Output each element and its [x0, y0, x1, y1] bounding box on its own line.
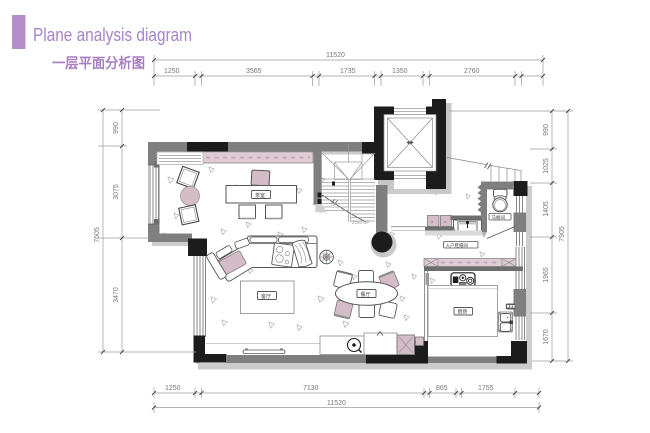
svg-text:3075: 3075 — [113, 184, 120, 200]
svg-text:1735: 1735 — [340, 68, 356, 75]
svg-text:1405: 1405 — [543, 201, 550, 217]
svg-text:1755: 1755 — [478, 385, 494, 392]
svg-text:865: 865 — [436, 385, 448, 392]
svg-text:客厅: 客厅 — [261, 293, 271, 300]
svg-text:7905: 7905 — [559, 226, 566, 242]
svg-text:1670: 1670 — [543, 329, 550, 345]
svg-text:2150 UP: 2150 UP — [352, 220, 370, 225]
svg-text:990: 990 — [113, 122, 120, 134]
svg-text:马桶间: 马桶间 — [492, 214, 506, 221]
svg-text:1250: 1250 — [165, 385, 181, 392]
svg-text:茶室: 茶室 — [255, 192, 265, 199]
svg-text:7605: 7605 — [94, 227, 101, 243]
svg-text:3470: 3470 — [113, 287, 120, 303]
svg-text:11520: 11520 — [326, 52, 345, 59]
svg-text:Plane analysis diagram: Plane analysis diagram — [33, 25, 192, 45]
svg-text:1965: 1965 — [543, 267, 550, 283]
svg-text:入户鞋帽间: 入户鞋帽间 — [446, 242, 469, 249]
svg-text:1025: 1025 — [543, 158, 550, 174]
svg-text:990: 990 — [543, 124, 550, 136]
svg-text:2760: 2760 — [464, 68, 480, 75]
svg-text:餐厅: 餐厅 — [361, 291, 371, 298]
svg-text:11520: 11520 — [327, 400, 346, 407]
svg-text:7130: 7130 — [303, 385, 319, 392]
svg-text:一层平面分析图: 一层平面分析图 — [52, 55, 145, 71]
svg-text:1350: 1350 — [392, 68, 408, 75]
svg-text:1250: 1250 — [164, 68, 180, 75]
svg-text:3565: 3565 — [246, 68, 262, 75]
svg-text:厨房: 厨房 — [458, 309, 468, 316]
